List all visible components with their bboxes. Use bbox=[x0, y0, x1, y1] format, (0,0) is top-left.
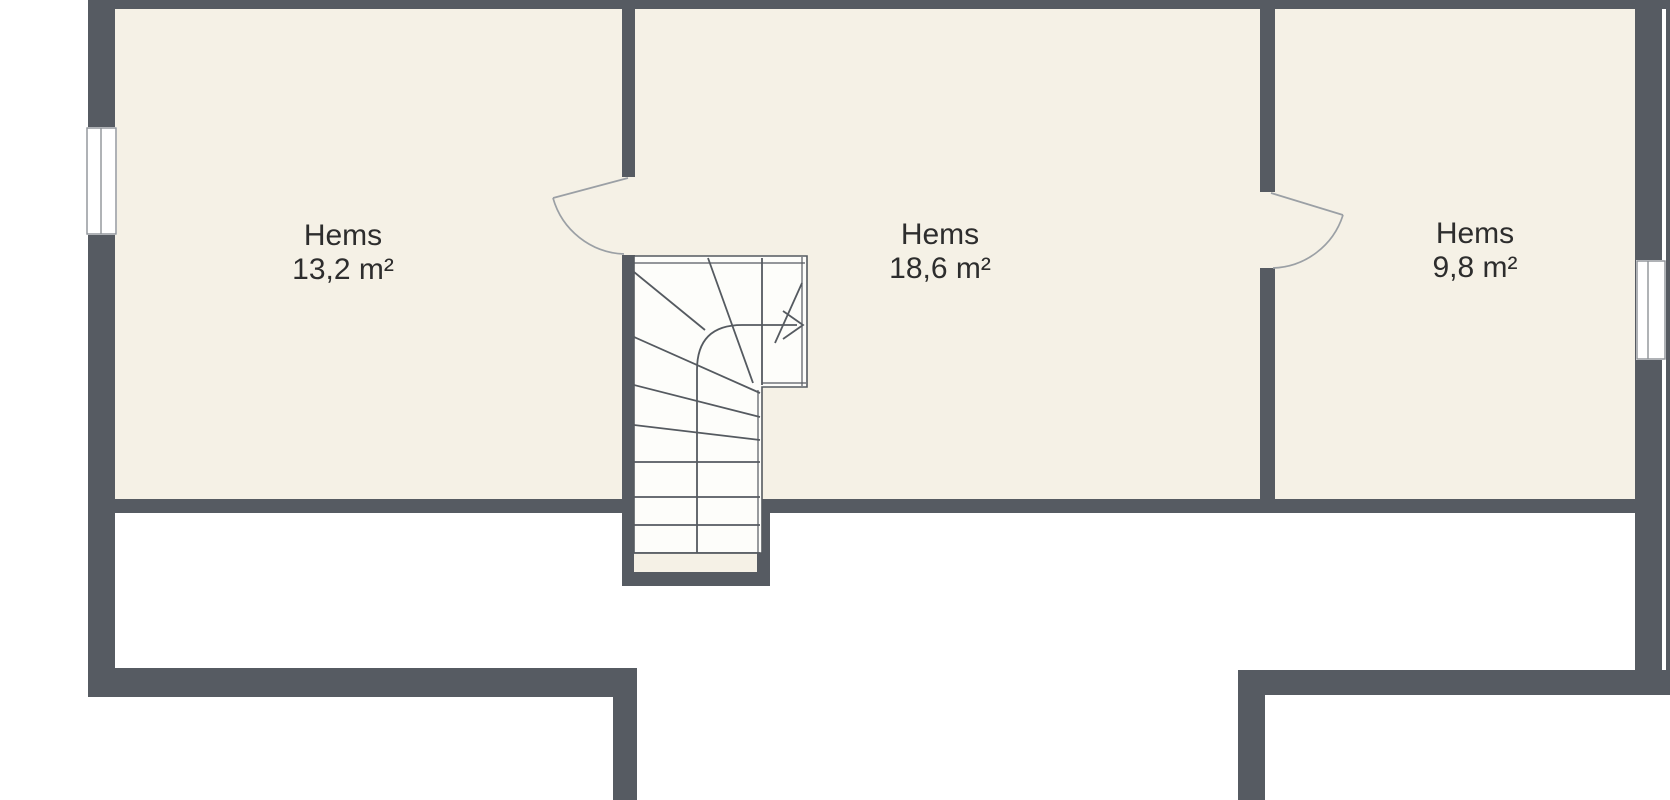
door-left-swing-arc bbox=[553, 198, 624, 254]
plan-linework bbox=[0, 0, 1670, 800]
door-left-leaf bbox=[553, 178, 628, 198]
door-right bbox=[1271, 193, 1343, 268]
staircase bbox=[634, 256, 807, 572]
door-left bbox=[553, 178, 628, 254]
door-gap-left bbox=[622, 177, 635, 255]
stair-outline bbox=[634, 256, 807, 553]
window-right bbox=[1636, 260, 1666, 360]
room-label-middle: Hems 18,6 m² bbox=[889, 218, 991, 286]
room-area: 9,8 m² bbox=[1432, 251, 1517, 285]
room-area: 18,6 m² bbox=[889, 252, 991, 286]
floor-plan: Hems 13,2 m² Hems 18,6 m² Hems 9,8 m² bbox=[0, 0, 1670, 800]
room-name: Hems bbox=[901, 218, 979, 252]
door-right-leaf bbox=[1271, 193, 1343, 215]
room-label-right: Hems 9,8 m² bbox=[1432, 217, 1517, 285]
door-right-swing-arc bbox=[1273, 215, 1343, 268]
room-label-left: Hems 13,2 m² bbox=[292, 219, 394, 287]
door-gap-right bbox=[1260, 192, 1275, 268]
window-right-opening bbox=[1636, 260, 1666, 360]
room-name: Hems bbox=[1436, 217, 1514, 251]
room-name: Hems bbox=[304, 219, 382, 253]
room-area: 13,2 m² bbox=[292, 253, 394, 287]
stair-landing bbox=[634, 553, 757, 572]
window-left bbox=[86, 127, 117, 235]
